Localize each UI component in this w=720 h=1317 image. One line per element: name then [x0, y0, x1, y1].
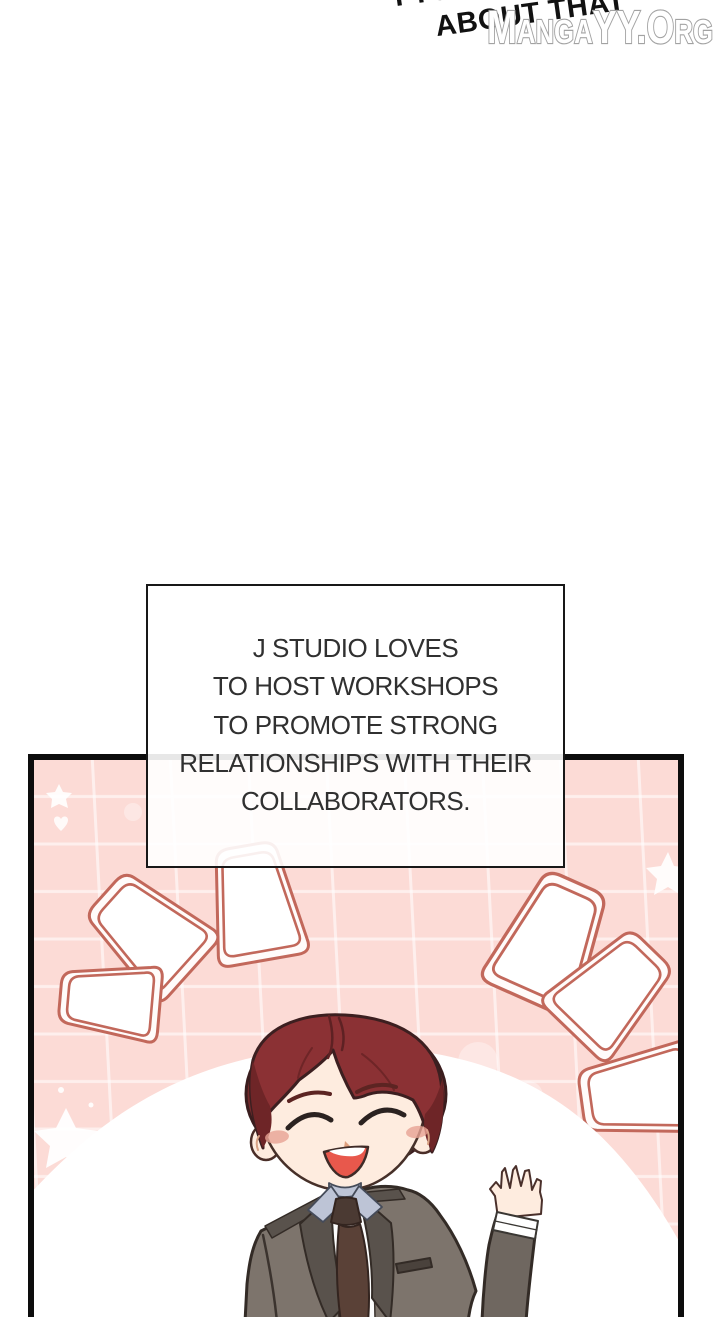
svg-text:MANGAYY.ORG: MANGAYY.ORG	[487, 2, 713, 53]
